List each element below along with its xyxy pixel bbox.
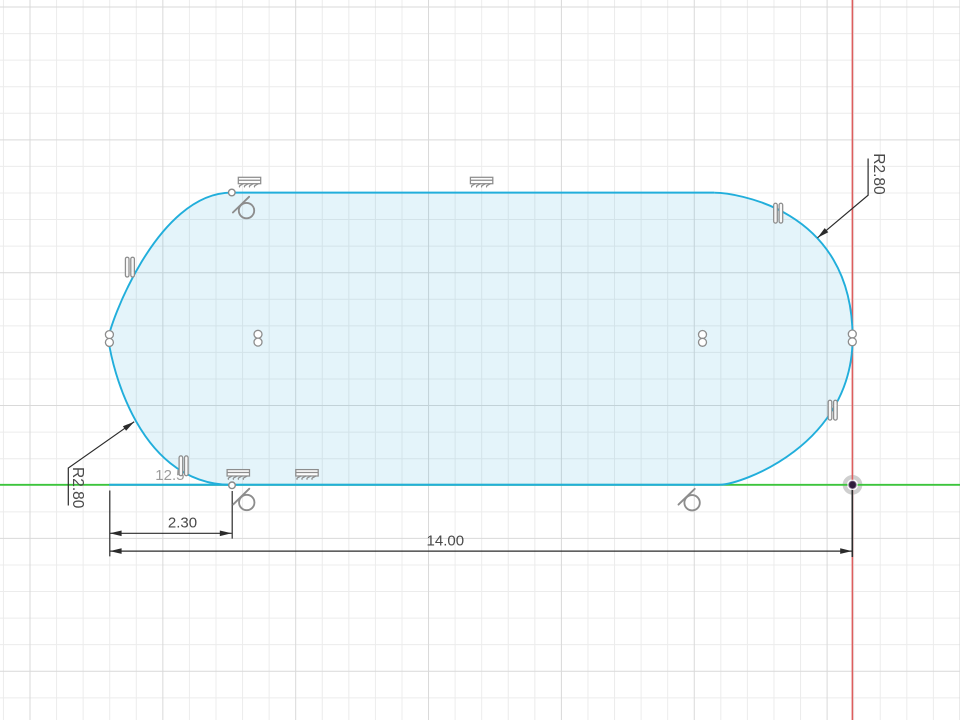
svg-text:2.30: 2.30 — [168, 515, 197, 532]
svg-text:14.00: 14.00 — [427, 533, 465, 550]
svg-text:R2.80: R2.80 — [69, 467, 86, 509]
svg-text:R2.80: R2.80 — [870, 153, 887, 195]
